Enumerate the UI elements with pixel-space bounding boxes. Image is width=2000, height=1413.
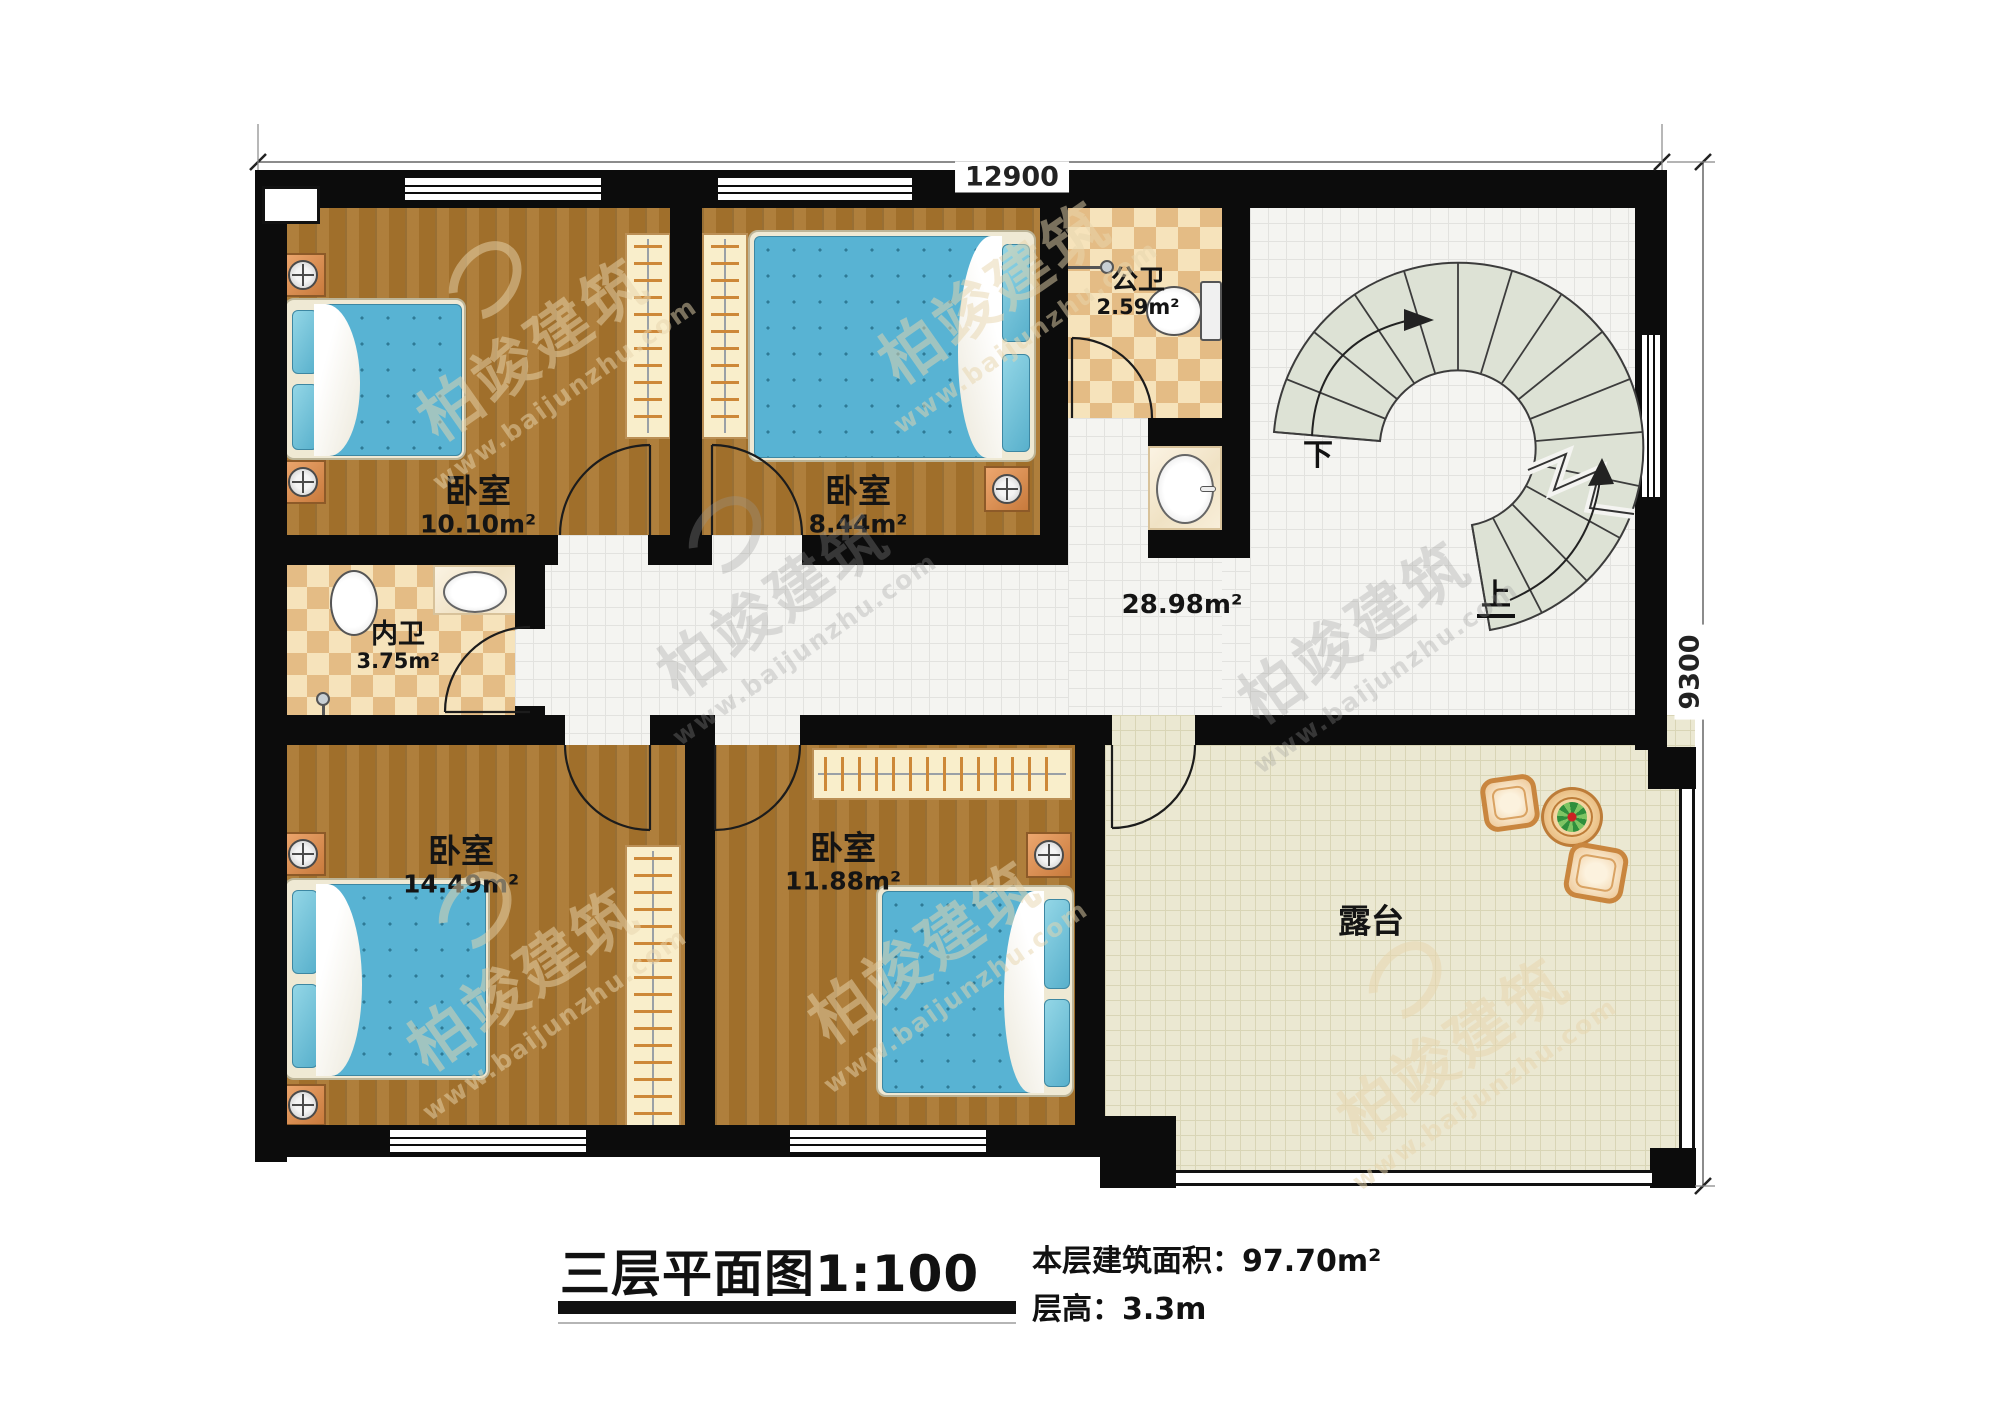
room-area: 3.75m² bbox=[357, 650, 440, 674]
nightstand bbox=[1026, 832, 1072, 878]
pillow bbox=[1044, 999, 1070, 1087]
wall bbox=[1075, 745, 1105, 1125]
bed-bedroom-tl bbox=[284, 298, 466, 460]
pillow bbox=[1044, 899, 1070, 989]
dimension-top: 12900 bbox=[955, 162, 1069, 193]
bed-bedroom-bl bbox=[284, 878, 490, 1080]
room-name: 卧室 bbox=[403, 834, 519, 871]
wardrobe bbox=[812, 748, 1072, 800]
terrace-post bbox=[1100, 1116, 1176, 1188]
room-label-inner-bath: 内卫 3.75m² bbox=[357, 620, 440, 674]
room-label-bedroom-bm: 卧室 11.88m² bbox=[785, 831, 901, 896]
wall bbox=[800, 715, 1112, 745]
room-name: 露台 bbox=[1338, 904, 1404, 941]
lamp-icon bbox=[992, 474, 1022, 504]
floor-height-text: 层高：3.3m bbox=[1032, 1284, 1206, 1328]
plan-title: 三层平面图1:100 bbox=[560, 1234, 979, 1306]
room-label-bedroom-bl: 卧室 14.49m² bbox=[403, 834, 519, 899]
lamp-icon bbox=[288, 839, 318, 869]
wall bbox=[515, 565, 545, 629]
bed-bedroom-tm bbox=[748, 230, 1036, 462]
faucet-icon bbox=[1200, 486, 1216, 492]
wall bbox=[685, 745, 715, 1125]
room-area: 8.44m² bbox=[809, 510, 908, 538]
window bbox=[718, 176, 912, 202]
toilet-tank bbox=[1200, 281, 1222, 341]
window bbox=[1640, 335, 1662, 497]
terrace-post bbox=[1648, 747, 1696, 789]
terrace-chair bbox=[1479, 772, 1542, 833]
plant-icon bbox=[1557, 802, 1587, 832]
stair-up-label: 上 bbox=[1477, 570, 1515, 618]
floor-terrace bbox=[1105, 715, 1695, 1185]
terrace-post bbox=[1650, 1148, 1696, 1188]
wardrobe bbox=[625, 233, 671, 439]
wall bbox=[802, 535, 1068, 565]
room-label-bedroom-tl: 卧室 10.10m² bbox=[420, 474, 536, 539]
room-label-bedroom-tm: 卧室 8.44m² bbox=[809, 474, 908, 539]
wall bbox=[1040, 205, 1068, 535]
title-underline-thin bbox=[558, 1322, 1016, 1324]
nightstand bbox=[984, 466, 1030, 512]
lamp-icon bbox=[288, 467, 318, 497]
room-name: 内卫 bbox=[357, 620, 440, 650]
wardrobe bbox=[625, 845, 681, 1133]
basin-counter bbox=[1148, 446, 1222, 530]
room-area: 11.88m² bbox=[785, 867, 901, 895]
window bbox=[405, 176, 601, 202]
pillow bbox=[1002, 354, 1030, 452]
title-underline-bar bbox=[558, 1301, 1016, 1314]
terrace-table bbox=[1541, 787, 1603, 847]
wall bbox=[255, 715, 565, 745]
lamp-icon bbox=[288, 260, 318, 290]
basin-counter bbox=[433, 565, 519, 615]
wardrobe bbox=[702, 233, 748, 439]
floor-area-text: 本层建筑面积：97.70m² bbox=[1032, 1236, 1381, 1280]
bed-bedroom-bm bbox=[876, 885, 1074, 1097]
room-name: 卧室 bbox=[420, 474, 536, 511]
terrace-chair bbox=[1562, 840, 1631, 906]
floor-plan-page: 卧室 10.10m² 卧室 8.44m² 公卫 2.59m² 内卫 3.75m²… bbox=[0, 0, 2000, 1413]
wall bbox=[648, 535, 712, 565]
floor-stair-hall bbox=[1250, 205, 1635, 745]
wall bbox=[515, 706, 545, 715]
dimension-right: 9300 bbox=[1675, 624, 1706, 719]
room-area: 2.59m² bbox=[1097, 296, 1180, 320]
room-label-terrace: 露台 bbox=[1338, 904, 1404, 941]
terrace-parapet bbox=[1176, 1170, 1652, 1186]
stair-down-label: 下 bbox=[1303, 430, 1333, 474]
pillow bbox=[1002, 244, 1030, 342]
wall bbox=[255, 170, 287, 1162]
wall bbox=[650, 715, 715, 745]
room-label-public-bath: 公卫 2.59m² bbox=[1097, 266, 1180, 320]
room-name: 卧室 bbox=[809, 474, 908, 511]
room-area: 10.10m² bbox=[420, 510, 536, 538]
wash-basin bbox=[443, 571, 507, 613]
lamp-icon bbox=[1034, 840, 1064, 870]
wall bbox=[670, 205, 702, 535]
room-name: 卧室 bbox=[785, 831, 901, 868]
flue-notch bbox=[262, 186, 320, 224]
terrace-parapet bbox=[1679, 789, 1695, 1148]
pillow bbox=[292, 984, 318, 1068]
pillow bbox=[292, 890, 318, 974]
window bbox=[790, 1128, 986, 1154]
window bbox=[390, 1128, 586, 1154]
wall bbox=[285, 535, 558, 565]
wall bbox=[1222, 205, 1250, 558]
room-name: 公卫 bbox=[1097, 266, 1180, 296]
lamp-icon bbox=[288, 1090, 318, 1120]
wall bbox=[1195, 715, 1640, 745]
hall-area-label: 28.98m² bbox=[1122, 590, 1243, 620]
room-area: 14.49m² bbox=[403, 870, 519, 898]
